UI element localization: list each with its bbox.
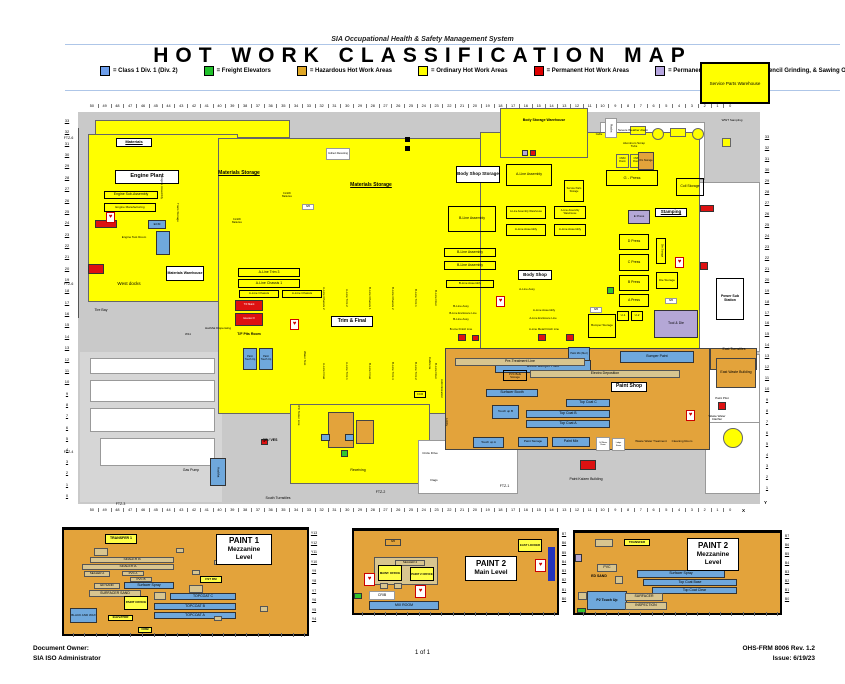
- panel-axis-right: Y13Y12Y11Y10Y9Y8Y7Y6Y5Y4: [308, 531, 320, 627]
- paint-touch-up-zone: Paint Touch Up: [259, 348, 273, 370]
- paint-office-zone: PAINT OFFICE: [124, 596, 148, 610]
- map-zone: [578, 592, 587, 600]
- axis-tick: 21: [456, 508, 469, 512]
- body-shop-zone: Body Shop: [518, 270, 552, 280]
- map-axis-top: 5049484746454443424140393837363534333231…: [86, 104, 736, 108]
- materials-storage-zone: Materials Storage: [344, 182, 398, 190]
- axis-tick: 0: [60, 493, 74, 504]
- maint-office-zone: MAINT. OFFICE: [378, 565, 402, 581]
- axis-tick: A12: [408, 612, 419, 616]
- t-f-pits-room-zone: T/F Pits Room: [236, 329, 262, 340]
- axis-tick: 25: [405, 508, 418, 512]
- panel-title-line: Level: [705, 560, 722, 567]
- axis-tick: 28: [760, 189, 774, 200]
- axis-tick: 47: [124, 508, 137, 512]
- panel-axis-bottom: MA17MA16MA15MA14MA13MA12MA11MA10MA9MA8MA…: [573, 612, 778, 616]
- panel-title-line: Level: [236, 555, 253, 562]
- axis-tick: 16: [760, 320, 774, 331]
- panel-title: PAINT 1MezzanineLevel: [216, 534, 272, 565]
- axis-tick: 6: [60, 425, 74, 436]
- axis-tick: 28: [367, 508, 380, 512]
- a-line-trim-1-zone: A-Line Trim 1: [345, 342, 348, 400]
- axis-tick: MA7: [687, 612, 698, 616]
- map-zone: [260, 606, 268, 612]
- b-line-trim-1-zone: B-Line Trim 1: [414, 270, 417, 326]
- axis-tick: 4: [673, 508, 686, 512]
- axis-tick: 3: [686, 508, 699, 512]
- axis-tick: 46: [137, 508, 150, 512]
- system-title: SIA Occupational Health & Safety Managem…: [0, 36, 845, 43]
- axis-tick: 23: [431, 104, 444, 108]
- top-coat-b-zone: Top Coat B: [526, 410, 610, 418]
- map-zone: [345, 434, 354, 441]
- axis-tick: 18: [760, 299, 774, 310]
- axis-tick: 12: [571, 508, 584, 512]
- axis-tick: 10: [597, 508, 610, 512]
- map-axis-left: 3332313029282726252423222120191817161514…: [60, 118, 74, 504]
- gas-pump-zone: Gas Pump: [180, 466, 202, 476]
- paint-touch-up-zone: Paint Touch Up: [243, 348, 257, 370]
- map-axis-bottom: 5049484746454443424140393837363534333231…: [86, 508, 736, 512]
- legend-label: = Class 1 Div. 1 (Div. 2): [113, 68, 178, 74]
- axis-tick: A2: [521, 612, 532, 616]
- a-line-assy-zone: A-Line Assy: [512, 286, 542, 294]
- axis-tick: 17: [760, 310, 774, 321]
- axis-tick: 28: [60, 175, 74, 186]
- d-press-zone: D Press: [619, 234, 649, 250]
- u-2-zone: U-2: [631, 311, 643, 321]
- aed-icon: ♥: [364, 573, 375, 586]
- power-sub-station-zone: Power Sub Station: [716, 278, 744, 320]
- axis-tick: 27: [380, 508, 393, 512]
- axis-tick: 35: [277, 104, 290, 108]
- u-1-zone: U-1: [617, 311, 629, 321]
- axis-tick: MA4: [721, 612, 732, 616]
- sealer-a-zone: SEALER A: [82, 564, 174, 570]
- severe-weather-alarm-zone: Severe Weather Alarm: [616, 124, 650, 138]
- axis-tick: MA17: [573, 612, 584, 616]
- axis-tick: 39: [226, 104, 239, 108]
- axis-tick: MX7: [213, 633, 225, 637]
- axis-tick: B1: [781, 588, 793, 597]
- axis-tick: 22: [60, 243, 74, 254]
- axis-tick: 12: [760, 364, 774, 375]
- axis-tick: 34: [290, 104, 303, 108]
- axis-tick: 15: [533, 104, 546, 108]
- axis-tick: 1: [712, 104, 725, 108]
- a-line-chassis-2-zone: A-Line Chassis 2: [322, 270, 325, 326]
- ed-sand-zone: ED SAND: [94, 583, 120, 589]
- axis-tick: 32: [316, 104, 329, 108]
- axis-tick: 10: [60, 379, 74, 390]
- touch-up-a-zone: Touch up A: [473, 437, 504, 448]
- panel-title: PAINT 2Main Level: [465, 556, 517, 581]
- a-press-zone: A Press: [619, 294, 649, 307]
- axis-tick: Y9: [308, 569, 320, 579]
- axis-tick: 32: [60, 129, 74, 140]
- axis-tick: 33: [60, 118, 74, 129]
- paint-panel-body: TRANSFERPVCED SANDSurfacer SprayTop Coat…: [573, 530, 782, 615]
- axis-tick: 2: [699, 104, 712, 108]
- axis-tick: 27: [380, 104, 393, 108]
- a-line-chassis-zone: A-Line Chassis: [239, 290, 279, 298]
- wwt-sampling-zone: WWT Sampling: [718, 116, 746, 126]
- receiving-zone: Receiving: [343, 468, 373, 474]
- axis-tick: Y11: [308, 550, 320, 560]
- administration-zone: Administration: [440, 368, 443, 410]
- legend-swatch-icon: [418, 66, 428, 76]
- axis-tick: 40: [214, 508, 227, 512]
- map-zone: [652, 128, 664, 140]
- axis-tick: 0: [724, 104, 736, 108]
- axis-tick: 24: [760, 233, 774, 244]
- axis-tick: 34: [290, 508, 303, 512]
- axis-tick: MA1: [755, 612, 766, 616]
- axis-tick: 12: [60, 357, 74, 368]
- pre-treatment-line-zone: Pre-Treatment Line: [455, 358, 585, 366]
- axis-tick: 20: [469, 104, 482, 108]
- axis-tick: 19: [482, 508, 495, 512]
- body-shop-storage-zone: Body Shop Storage: [456, 166, 500, 183]
- axis-tick: B7: [558, 532, 570, 541]
- map-zone: [90, 358, 215, 374]
- map-zone: [405, 146, 410, 151]
- axis-tick: B4: [558, 560, 570, 569]
- legend-label: = Ordinary Hot Work Areas: [431, 68, 508, 74]
- elevator-zone: ELEVATOR: [108, 615, 133, 621]
- axis-tick: 6: [648, 508, 661, 512]
- a-line-assembly-warehouse-zone: A-Line Assembly Warehouse: [506, 206, 546, 219]
- map-zone: [394, 583, 402, 589]
- axis-tick: 2: [699, 508, 712, 512]
- cmm-room-zone: CMM Room: [616, 154, 629, 168]
- axis-tick: MX4: [247, 633, 259, 637]
- hazmat-dispensing-zone: HazMat Dispensing: [202, 324, 234, 334]
- map-zone: [538, 334, 546, 341]
- axis-tick: 26: [392, 508, 405, 512]
- axis-tick: 30: [60, 152, 74, 163]
- axis-tick: 1: [60, 482, 74, 493]
- legend-item: = Ordinary Hot Work Areas: [418, 66, 508, 76]
- axis-tick: 8: [622, 508, 635, 512]
- axis-tick: A0: [544, 612, 555, 616]
- n-r-zone: N/R: [385, 539, 401, 546]
- b-line-assy-zone: B-Line Assy: [446, 316, 476, 323]
- map-zone: [700, 205, 714, 212]
- map-zone: [607, 287, 614, 294]
- engine-sub-assembly-zone: Engine Sub-Assembly: [104, 191, 158, 199]
- map-zone: [700, 262, 708, 270]
- map-zone: [472, 335, 479, 341]
- map-zone: [189, 585, 203, 593]
- b-line-assembly-zone: B-Line Assembly: [444, 248, 496, 257]
- legend-label: = Permanent Hot Work Areas: [547, 68, 630, 74]
- axis-tick: 44: [163, 508, 176, 512]
- waste-water-treatment-zone: Waste Water Treatment: [634, 435, 668, 448]
- materials-warehouse-label: Materials Warehouse: [166, 266, 204, 281]
- trans-storage-zone: Trans Storage: [176, 196, 179, 228]
- top-coat-base-zone: Top Coat Base: [643, 579, 737, 586]
- axis-tick: B2: [558, 578, 570, 587]
- axis-tick: 24: [418, 508, 431, 512]
- a-line-metal-finish-line-zone: A-Line Metal Finish Line: [515, 326, 573, 333]
- axis-tick: A17: [352, 612, 363, 616]
- axis-tick: 36: [265, 508, 278, 512]
- axis-tick: 49: [99, 104, 112, 108]
- coil-storage-zone: Coil Storage: [676, 178, 704, 196]
- panel-title: PAINT 2MezzanineLevel: [687, 538, 739, 571]
- map-zone: [100, 438, 215, 466]
- axis-tick: 13: [60, 345, 74, 356]
- water-test-zone: Water Test: [303, 348, 306, 368]
- bumper-paint-zone: Bumper Paint: [620, 351, 694, 363]
- axis-tick: 39: [226, 508, 239, 512]
- axis-tick: 5: [60, 436, 74, 447]
- axis-tick: 4: [673, 104, 686, 108]
- axis-tick: 16: [60, 311, 74, 322]
- x-axis-label: X: [742, 508, 745, 513]
- oil-storage-zone: OIL Storage: [638, 152, 654, 170]
- map-zone: [718, 402, 726, 410]
- p2-touch-up-zone: P2 Touch Up: [587, 591, 627, 610]
- axis-tick: Y6: [308, 598, 320, 608]
- axis-tick: 17: [507, 104, 520, 108]
- b-line-door-zone: B-Line Door: [434, 342, 437, 400]
- axis-tick: 19: [60, 277, 74, 288]
- axis-tick: 25: [760, 222, 774, 233]
- b-line-assembly-zone: B-Line Assembly: [446, 280, 494, 288]
- axis-tick: 17: [60, 300, 74, 311]
- panel-axis-bottom: MX20MX19MX18MX17MX16MX15MX14MX13MX12MX11…: [62, 633, 305, 637]
- legend-swatch-icon: [100, 66, 110, 76]
- b-line-trim-3-zone: B-Line Trim 3: [391, 342, 394, 400]
- n-r-zone: N/R: [590, 307, 602, 313]
- mix-room-zone: MIX ROOM: [369, 601, 439, 610]
- service-parts-storage-zone: Service Parts Storage: [564, 180, 584, 202]
- axis-tick: 18: [495, 508, 508, 512]
- map-zone: [321, 434, 330, 441]
- axis-tick: B3: [558, 569, 570, 578]
- axis-tick: 36: [265, 104, 278, 108]
- axis-tick: 7: [60, 413, 74, 424]
- axis-tick: 10: [760, 386, 774, 397]
- legend-item: = Hazardous Hot Work Areas: [297, 66, 392, 76]
- axis-tick: MA14: [607, 612, 618, 616]
- axis-tick: A14: [386, 612, 397, 616]
- axis-tick: 21: [60, 254, 74, 265]
- axis-tick: 14: [60, 334, 74, 345]
- axis-tick: MX12: [155, 633, 167, 637]
- n-r-zone: N/R: [302, 204, 314, 210]
- oil-water-room-zone: Oil Water Room: [596, 437, 610, 451]
- axis-tick: MA6: [698, 612, 709, 616]
- south-turnstiles-zone: South Turnstiles: [256, 496, 300, 502]
- axis-tick: MA5: [710, 612, 721, 616]
- circle-drive-zone: Circle Drive: [420, 448, 440, 460]
- ftz-1-zone: FTZ-1: [496, 484, 513, 490]
- axis-tick: 22: [443, 508, 456, 512]
- axis-tick: 5: [760, 441, 774, 452]
- n-r-zone: N/R: [665, 298, 677, 304]
- axis-tick: A11: [420, 612, 431, 616]
- map-zone: [405, 137, 410, 142]
- axis-tick: 23: [431, 508, 444, 512]
- lodge-room-zone: Lodge Room: [612, 438, 625, 451]
- map-zone: [90, 380, 215, 402]
- axis-tick: 18: [60, 288, 74, 299]
- paint-panel-body: TRANSFER 1SEALER BSEALER ASEALER APVC AP…: [62, 527, 309, 636]
- waste-water-clarifier-zone: [723, 428, 743, 448]
- waste-water-clarifier-zone: Waste Water Clarifier: [705, 410, 729, 426]
- axis-tick: 8: [760, 408, 774, 419]
- axis-tick: 26: [60, 198, 74, 209]
- top-coat-c-zone: Top Coat C: [566, 399, 610, 407]
- aed-icon: ♥: [415, 585, 426, 598]
- axis-tick: 13: [558, 508, 571, 512]
- axis-tick: MX2: [270, 633, 282, 637]
- map-zone: [722, 138, 731, 147]
- issue-date: Issue: 6/19/23: [743, 654, 816, 664]
- cable-zone: Cable: [592, 133, 606, 138]
- elevator-8-zone: Elevator 8: [235, 313, 263, 326]
- axis-tick: 30: [760, 167, 774, 178]
- axis-tick: 24: [418, 104, 431, 108]
- axis-tick: MX6: [224, 633, 236, 637]
- ftz-2-zone: FTZ-2: [372, 490, 389, 496]
- axis-tick: 48: [112, 508, 125, 512]
- axis-tick: 15: [760, 331, 774, 342]
- a-line-chassis-zone: A-Line Chassis: [282, 290, 322, 298]
- e-press-zone: E Press: [628, 210, 650, 224]
- map-axis-right: 3332313029282726252423222120191817161514…: [760, 134, 774, 496]
- g-press-zone: G - Press: [606, 170, 658, 186]
- facility-map: RacksCMM RoomCMM RoomEast Waste Building…: [60, 104, 776, 518]
- axis-tick: 9: [609, 508, 622, 512]
- axis-tick: MX13: [143, 633, 155, 637]
- inspection-zone: INSPECTION: [625, 602, 667, 610]
- axis-tick: A13: [397, 612, 408, 616]
- map-zone: [328, 412, 354, 448]
- axis-tick: 25: [405, 104, 418, 108]
- axis-tick: 48: [112, 104, 125, 108]
- axis-tick: B6: [558, 541, 570, 550]
- y-axis-label: Y: [764, 500, 767, 505]
- axis-tick: 46: [137, 104, 150, 108]
- east-locker-zone: EAST LOCKER: [518, 539, 542, 552]
- axis-tick: MX8: [201, 633, 213, 637]
- axis-tick: 7: [635, 508, 648, 512]
- map-zone: [94, 548, 108, 556]
- page-number: 1 of 1: [0, 650, 845, 656]
- map-zone: [341, 450, 348, 457]
- map-zone: [192, 570, 200, 575]
- axis-tick: 47: [124, 104, 137, 108]
- axis-tick: 11: [584, 508, 597, 512]
- map-zone: [548, 547, 555, 581]
- legend-label: = Hazardous Hot Work Areas: [310, 68, 392, 74]
- axis-tick: 2: [60, 470, 74, 481]
- panel-title-line: Mezzanine: [697, 552, 730, 559]
- axis-tick: 18: [495, 104, 508, 108]
- b-line-door-zone: B-Line Door: [434, 270, 437, 326]
- map-zone: [458, 334, 466, 341]
- panel-title-line: PAINT 2: [698, 542, 728, 550]
- axis-tick: MA8: [676, 612, 687, 616]
- axis-tick: 3: [760, 463, 774, 474]
- axis-tick: 11: [760, 375, 774, 386]
- legend-swatch-icon: [204, 66, 214, 76]
- axis-tick: A8: [454, 612, 465, 616]
- axis-tick: 12: [571, 104, 584, 108]
- axis-tick: MX0: [294, 633, 306, 637]
- axis-tick: 20: [60, 266, 74, 277]
- a-line-enclosure-line-zone: A-Line Enclosure Line: [515, 315, 571, 322]
- axis-tick: 23: [760, 244, 774, 255]
- axis-tick: 9: [609, 104, 622, 108]
- axis-tick: 29: [760, 178, 774, 189]
- body-storage-warehouse-zone: Body Storage Warehouse: [508, 114, 580, 128]
- pvc-a-zone: PVC A: [122, 571, 144, 576]
- axis-tick: B7: [781, 534, 793, 543]
- stamping-zone: Stamping: [655, 208, 687, 217]
- axis-tick: 6: [648, 104, 661, 108]
- ccr-zone: CCR: [414, 391, 426, 398]
- axis-tick: MA12: [630, 612, 641, 616]
- c-press-zone: C Press: [619, 254, 649, 271]
- trim-final-zone: Trim & Final: [331, 316, 373, 327]
- axis-tick: 0: [724, 508, 736, 512]
- axis-tick: 11: [584, 104, 597, 108]
- axis-tick: 19: [760, 288, 774, 299]
- a-line-assembly-warehouse-zone: A-Line Assembly Warehouse: [554, 206, 586, 219]
- axis-tick: B3: [781, 570, 793, 579]
- axis-tick: 31: [60, 141, 74, 152]
- axis-tick: 42: [188, 508, 201, 512]
- axis-tick: MX9: [189, 633, 201, 637]
- axis-tick: 22: [760, 255, 774, 266]
- materials-storage-zone: Materials Storage: [212, 170, 266, 178]
- axis-tick: 14: [546, 508, 559, 512]
- axis-tick: 28: [367, 104, 380, 108]
- axis-tick: MA9: [664, 612, 675, 616]
- axis-tick: 15: [60, 322, 74, 333]
- paint-storage-zone: Paint Storage: [518, 437, 548, 447]
- flags-zone: Flags: [426, 478, 442, 484]
- axis-tick: Y5: [308, 608, 320, 618]
- axis-tick: 3: [60, 459, 74, 470]
- sealer-a-zone: SEALER A: [84, 571, 110, 577]
- surfacer-spray-zone: Surfacer Spray: [124, 582, 174, 589]
- map-zone: [530, 150, 536, 156]
- axis-tick: 43: [175, 104, 188, 108]
- axis-tick: A16: [363, 612, 374, 616]
- axis-tick: 31: [760, 156, 774, 167]
- axis-tick: 7: [760, 419, 774, 430]
- axis-tick: 23: [60, 232, 74, 243]
- axis-tick: A9: [442, 612, 453, 616]
- legend-swatch-icon: [297, 66, 307, 76]
- axis-tick: 30: [341, 104, 354, 108]
- topcoat-c-zone: TOPCOAT C: [170, 593, 236, 600]
- hot-work-classification-map-page: SIA Occupational Health & Safety Managem…: [0, 0, 845, 684]
- axis-tick: MA11: [641, 612, 652, 616]
- map-zone: [88, 264, 104, 274]
- map-zone: [176, 548, 184, 553]
- axis-tick: 30: [341, 508, 354, 512]
- map-zone: [78, 128, 79, 318]
- sealer-b-zone: SEALER B: [90, 557, 174, 563]
- top-coat-a-zone: Top Coat A: [526, 420, 610, 428]
